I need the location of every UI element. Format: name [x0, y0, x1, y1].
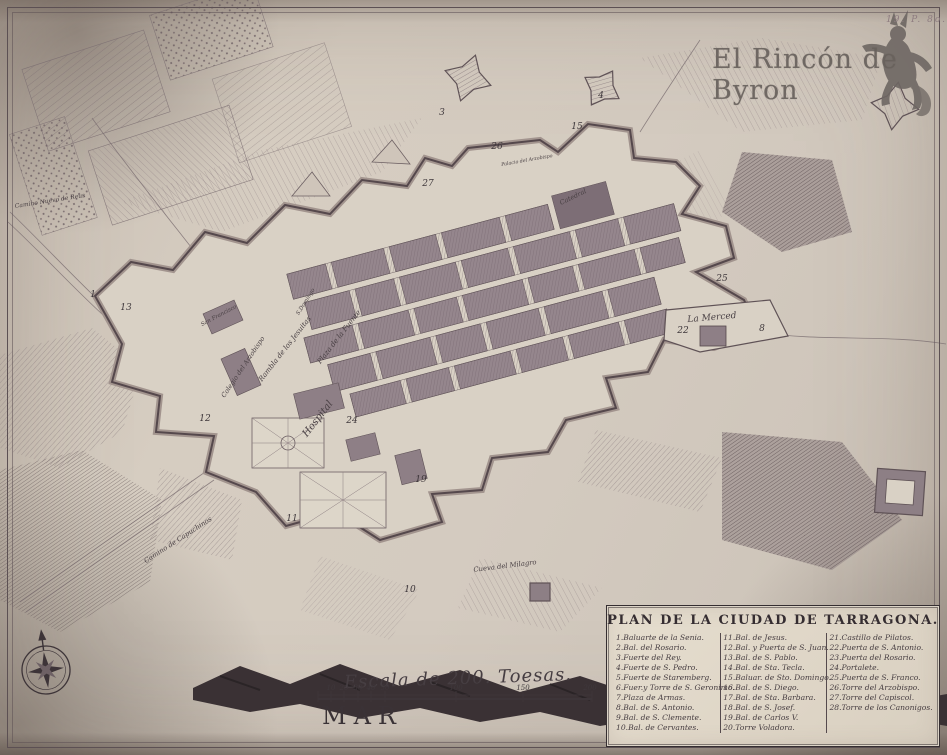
legend-entry: 12.Bal. y Puerta de S. Juan. — [723, 643, 824, 653]
legend-columns: 1.Baluarte de la Senia.2.Bal. del Rosari… — [614, 633, 933, 733]
legend-entry: 4.Fuerte de S. Pedro. — [616, 663, 718, 673]
map-marker-4: 4 — [598, 91, 604, 101]
legend-entry: 20.Torre Voladora. — [723, 723, 824, 733]
legend-entry: 9.Bal. de S. Clemente. — [616, 713, 718, 723]
map-marker-12: 12 — [199, 414, 210, 424]
scale-tick-100: 100 — [449, 684, 462, 692]
legend-entry: 14.Bal. de Sta. Tecla. — [723, 663, 824, 673]
map-marker-10: 10 — [404, 585, 415, 595]
scale-tick-20: 20 — [340, 684, 349, 692]
legend-column: 21.Castillo de Pilatos.22.Puerta de S. A… — [826, 633, 932, 733]
legend-entry: 8.Bal. de S. Antonio. — [616, 703, 718, 713]
legend-entry: 19.Bal. de Carlos V. — [723, 713, 824, 723]
scale-tick-10: 10 — [327, 684, 336, 692]
plate-number: 19. P. 8o. — [886, 15, 947, 25]
legend-entry: 1.Baluarte de la Senia. — [616, 633, 718, 643]
legend-entry: 25.Puerta de S. Franco. — [829, 673, 930, 683]
legend-entry: 28.Torre de los Canonigos. — [829, 703, 930, 713]
scale-tick-50: 50 — [381, 684, 390, 692]
legend-entry: 2.Bal. del Rosario. — [616, 643, 718, 653]
scale-tick-150: 150 — [516, 684, 529, 692]
legend-title: PLAN DE LA CIUDAD DE TARRAGONA. — [607, 613, 939, 628]
map-marker-25: 25 — [716, 274, 727, 284]
legend-entry: 11.Bal. de Jesus. — [723, 633, 824, 643]
legend-entry: 13.Bal. de S. Pablo. — [723, 653, 824, 663]
legend-entry: 3.Fuerte del Rey. — [616, 653, 718, 663]
legend-entry: 6.Fuer.y Torre de S. Geronimo. — [616, 683, 718, 693]
compass-rose-icon — [17, 626, 73, 696]
legend-entry: 26.Torre del Arzobispo. — [829, 683, 930, 693]
legend-entry: 17.Bal. de Sta. Barbara. — [723, 693, 824, 703]
legend-entry: 16.Bal. de S. Diego. — [723, 683, 824, 693]
legend-entry: 24.Portalete. — [829, 663, 930, 673]
map-marker-15: 15 — [571, 122, 582, 132]
legend-entry: 27.Torre del Capiscol. — [829, 693, 930, 703]
legend-column: 1.Baluarte de la Senia.2.Bal. del Rosari… — [614, 633, 720, 733]
map-marker-8: 8 — [759, 324, 765, 334]
sea-label: MAR — [322, 702, 403, 730]
map-marker-13: 13 — [120, 303, 131, 313]
scale-tick-40: 40 — [367, 684, 376, 692]
map-marker-11: 11 — [286, 514, 297, 524]
map-marker-24: 24 — [346, 416, 357, 426]
watermark-text: El Rincón de Byron — [712, 44, 947, 106]
scale-tick-200: 200 — [583, 684, 596, 692]
map-marker-22: 22 — [677, 326, 688, 336]
scale-tick-30: 30 — [354, 684, 363, 692]
map-marker-26: 26 — [491, 142, 502, 152]
legend-entry: 21.Castillo de Pilatos. — [829, 633, 930, 643]
map-marker-1: 1 — [90, 290, 96, 300]
legend-entry: 7.Plaza de Armas. — [616, 693, 718, 703]
legend-entry: 18.Bal. de S. Josef. — [723, 703, 824, 713]
legend-entry: 23.Puerta del Rosario. — [829, 653, 930, 663]
map-marker-27: 27 — [422, 179, 433, 189]
legend-entry: 15.Baluar. de Sto. Domingo. — [723, 673, 824, 683]
legend-entry: 10.Bal. de Cervantes. — [616, 723, 718, 733]
legend-column: 11.Bal. de Jesus.12.Bal. y Puerta de S. … — [720, 633, 826, 733]
map-marker-19: 19 — [415, 475, 426, 485]
scanned-map-photo: El Rincón de Byron 19. P. 8o. La MercedH… — [0, 0, 947, 755]
map-marker-3: 3 — [439, 108, 445, 118]
legend-cartouche: PLAN DE LA CIUDAD DE TARRAGONA. 1.Baluar… — [606, 605, 940, 747]
legend-entry: 22.Puerta de S. Antonio. — [829, 643, 930, 653]
legend-entry: 5.Fuerte de Staremberg. — [616, 673, 718, 683]
